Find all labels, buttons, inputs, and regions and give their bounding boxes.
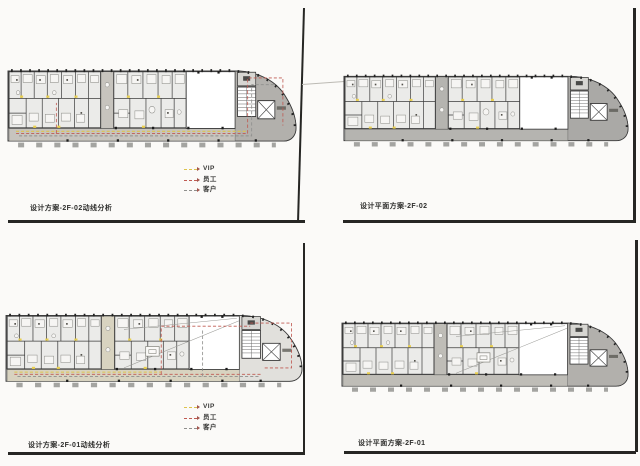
legend-row-staff: 员工	[184, 177, 217, 184]
vip-route-label: VIP	[203, 404, 215, 411]
floor-plan-2f02	[342, 68, 630, 160]
guest-route-swatch	[184, 428, 197, 429]
vip-route-label: VIP	[203, 166, 215, 173]
panel-2f02-floor-plan: 设计平面方案-2F-02	[320, 0, 640, 230]
guest-route-label: 客户	[203, 187, 217, 194]
staff-route-label: 员工	[203, 415, 217, 422]
panel-title-2f01-analysis: 设计方案-2F-01动线分析	[28, 442, 110, 449]
presentation-collage: VIP 员工 客户 设计方案-2F-02动线分析 设计平面方案-2F-02	[0, 0, 640, 466]
staff-route-swatch	[184, 418, 197, 419]
vip-route-swatch	[184, 169, 197, 170]
panel-2f01-floor-plan: 设计平面方案-2F-01	[320, 233, 640, 466]
staff-route-swatch	[184, 180, 197, 181]
panel-2f02-circulation-analysis: VIP 员工 客户 设计方案-2F-02动线分析	[0, 0, 308, 230]
floor-plan-2f01-circulation	[4, 307, 304, 401]
circulation-legend: VIP 员工 客户	[184, 166, 217, 194]
circulation-legend: VIP 员工 客户	[184, 404, 217, 432]
legend-row-staff: 员工	[184, 415, 217, 422]
panel-2f01-circulation-analysis: VIP 员工 客户 设计方案-2F-01动线分析	[0, 233, 308, 466]
panel-title-2f02-analysis: 设计方案-2F-02动线分析	[30, 205, 112, 212]
legend-row-guest: 客户	[184, 425, 217, 432]
legend-row-vip: VIP	[184, 166, 217, 173]
panel-title-2f01-plan: 设计平面方案-2F-01	[358, 440, 425, 447]
legend-row-vip: VIP	[184, 404, 217, 411]
legend-row-guest: 客户	[184, 187, 217, 194]
panel-title-2f02-plan: 设计平面方案-2F-02	[360, 203, 427, 210]
guest-route-label: 客户	[203, 425, 217, 432]
guest-route-swatch	[184, 190, 197, 191]
floor-plan-2f02-circulation	[6, 62, 298, 162]
floor-plan-2f01	[340, 315, 630, 405]
vip-route-swatch	[184, 407, 197, 408]
staff-route-label: 员工	[203, 177, 217, 184]
